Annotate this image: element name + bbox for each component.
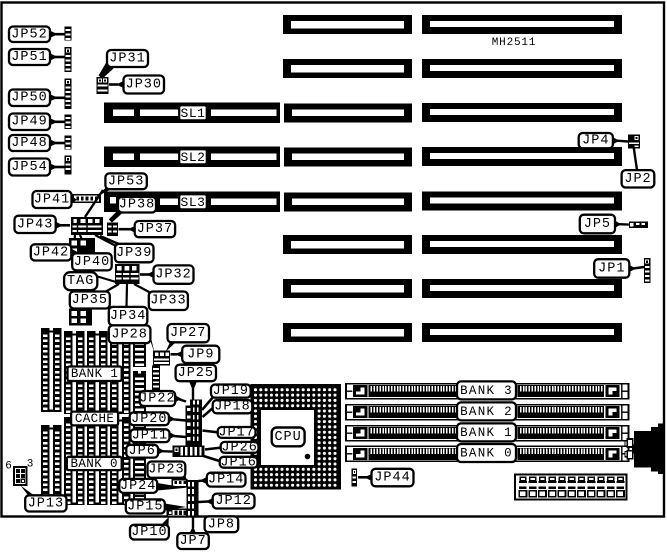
svg-text:JP9: JP9 [187,347,214,362]
svg-text:JP19: JP19 [213,384,249,399]
svg-text:JP24: JP24 [120,479,156,494]
svg-text:BANK 3: BANK 3 [460,384,513,398]
svg-text:JP34: JP34 [110,309,146,324]
svg-text:JP17: JP17 [218,425,254,440]
svg-text:JP50: JP50 [11,91,47,106]
svg-text:JP20: JP20 [131,412,167,427]
svg-text:JP7: JP7 [179,534,206,549]
svg-text:JP49: JP49 [11,115,47,130]
svg-text:JP8: JP8 [208,517,235,532]
svg-text:BANK 0: BANK 0 [70,457,117,471]
svg-text:JP32: JP32 [155,268,191,283]
svg-text:JP37: JP37 [137,222,173,237]
svg-text:JP52: JP52 [11,27,47,42]
svg-text:SL1: SL1 [181,106,206,121]
svg-text:JP30: JP30 [126,78,162,93]
svg-text:JP39: JP39 [116,246,152,261]
svg-text:JP10: JP10 [131,525,167,540]
svg-text:JP44: JP44 [374,471,410,486]
svg-text:JP25: JP25 [178,366,214,381]
svg-text:BANK 0: BANK 0 [460,447,513,461]
svg-text:JP18: JP18 [214,400,250,415]
svg-text:JP1: JP1 [598,261,625,276]
svg-text:MH2511: MH2511 [492,37,536,49]
svg-text:SL2: SL2 [181,150,206,165]
svg-text:JP16: JP16 [220,455,256,470]
svg-text:6: 6 [5,461,12,473]
svg-text:JP53: JP53 [108,174,144,189]
svg-text:JP13: JP13 [28,496,64,511]
svg-text:SL3: SL3 [181,195,206,210]
svg-text:CPU: CPU [274,430,301,445]
svg-text:JP23: JP23 [148,463,184,478]
svg-text:JP11: JP11 [132,429,168,444]
svg-text:JP51: JP51 [11,50,47,65]
svg-text:JP28: JP28 [111,327,147,342]
svg-text:CACHE: CACHE [75,412,115,426]
svg-text:JP41: JP41 [34,193,70,208]
svg-text:JP42: JP42 [33,245,69,260]
svg-text:JP5: JP5 [584,217,611,232]
svg-text:TAG: TAG [67,274,94,289]
svg-text:JP38: JP38 [119,198,155,213]
svg-text:JP35: JP35 [72,293,108,308]
svg-text:JP31: JP31 [109,52,145,67]
svg-text:JP33: JP33 [150,294,186,309]
svg-text:JP15: JP15 [127,499,163,514]
svg-text:3: 3 [27,459,34,471]
svg-text:JP54: JP54 [11,160,47,175]
svg-text:JP27: JP27 [170,326,206,341]
svg-text:JP12: JP12 [215,494,251,509]
svg-text:JP4: JP4 [582,134,609,149]
svg-text:JP48: JP48 [11,136,47,151]
svg-text:JP40: JP40 [74,255,110,270]
svg-text:BANK 2: BANK 2 [460,405,513,419]
svg-text:JP43: JP43 [17,217,53,232]
svg-text:BANK 1: BANK 1 [460,426,513,440]
svg-text:BANK 1: BANK 1 [71,367,118,381]
svg-text:JP6: JP6 [129,444,156,459]
svg-text:JP22: JP22 [139,392,175,407]
svg-text:JP2: JP2 [624,172,651,187]
svg-text:JP14: JP14 [208,473,244,488]
svg-text:JP26: JP26 [221,440,257,455]
